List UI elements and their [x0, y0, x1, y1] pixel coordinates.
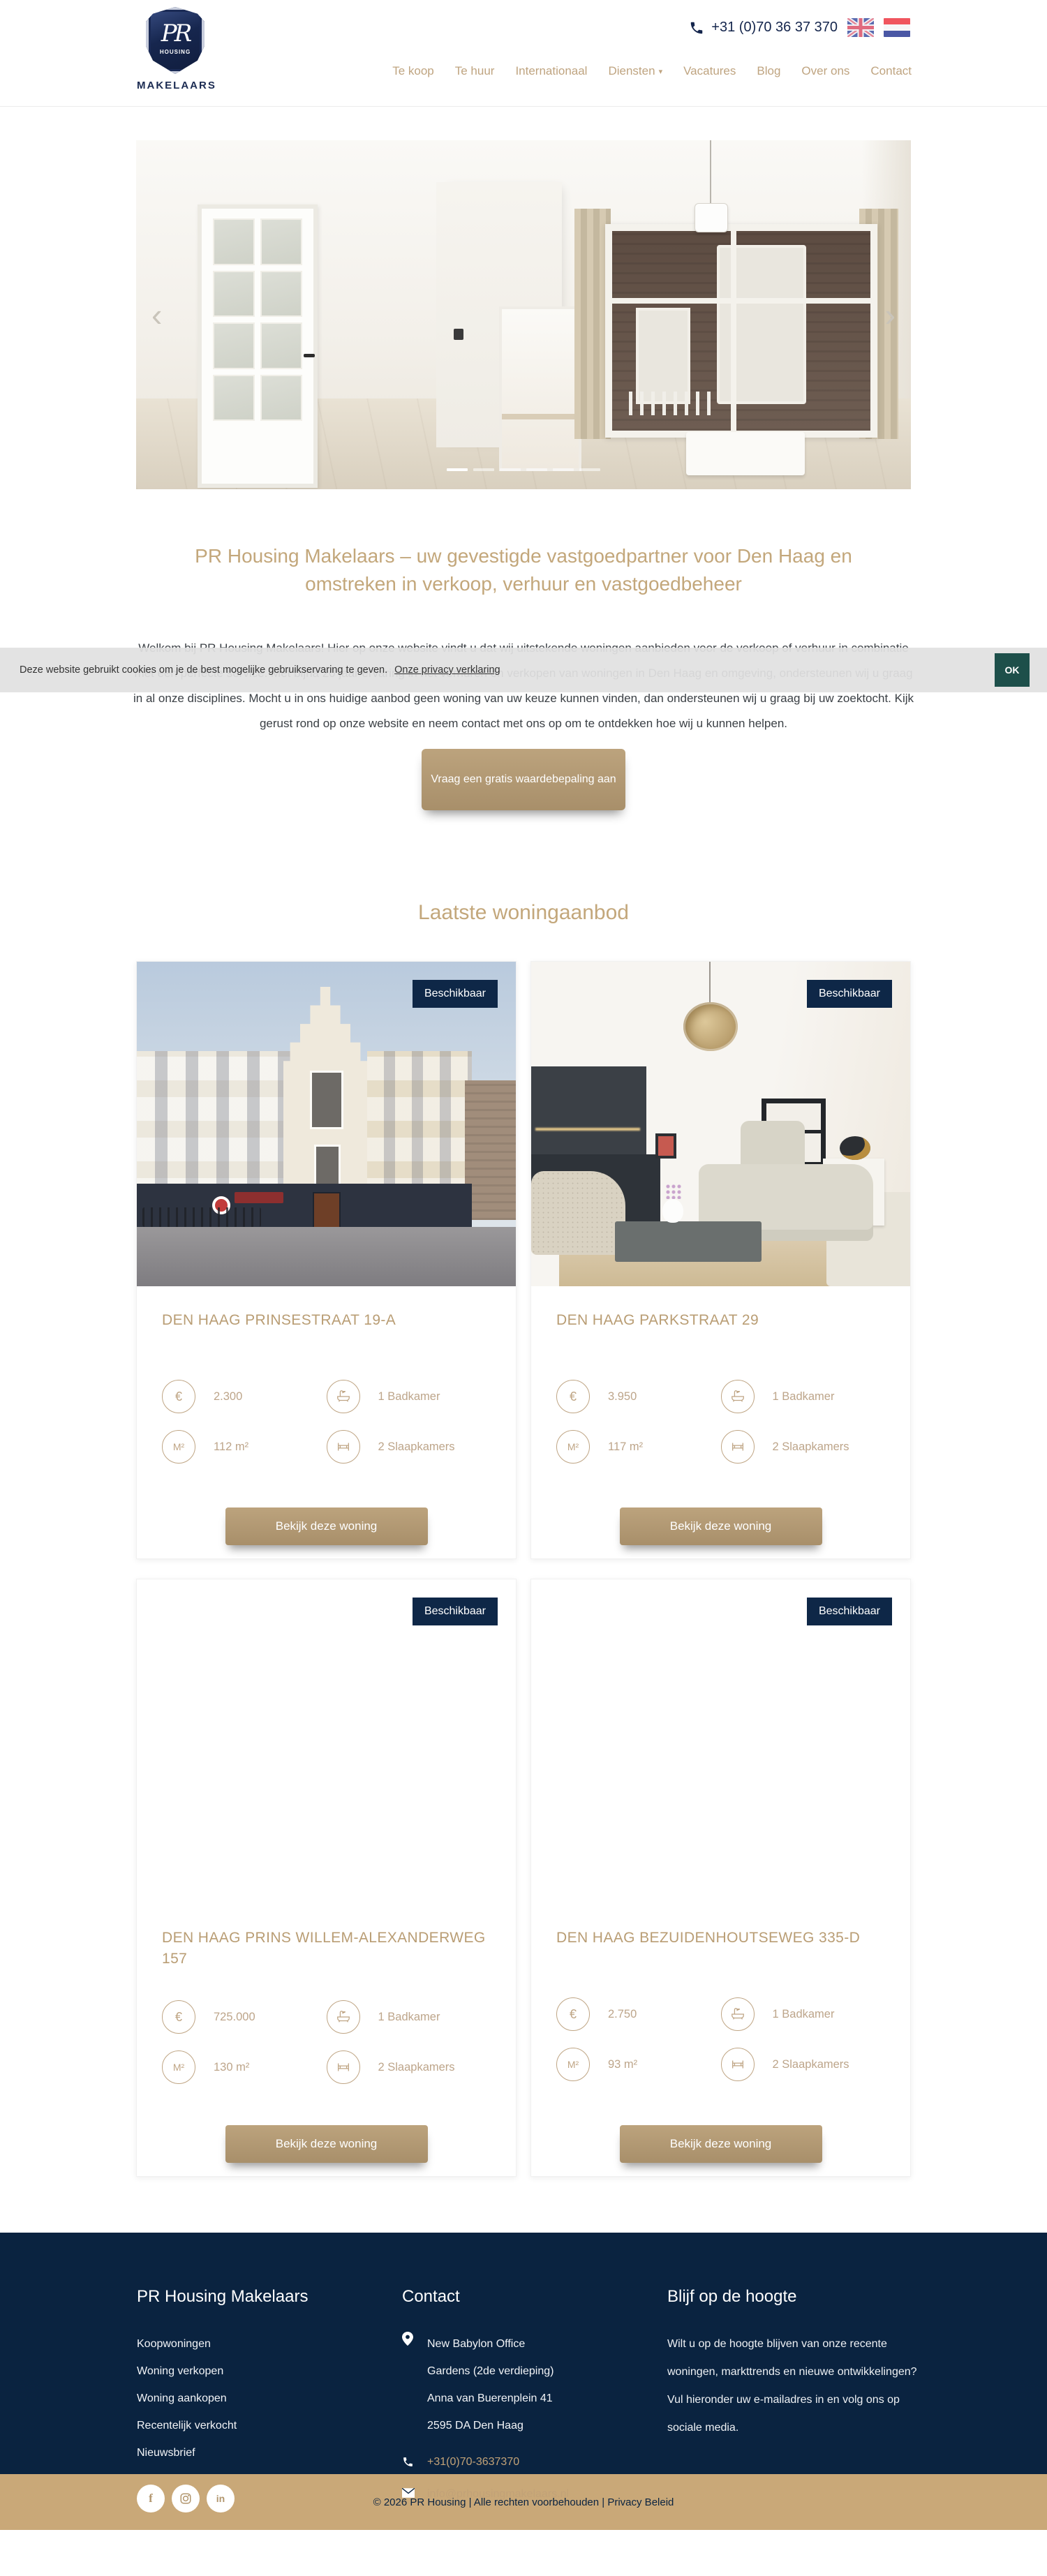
carousel-dash-4[interactable] — [526, 468, 547, 471]
hero-carousel: ‹ › — [136, 140, 911, 489]
feature-bathrooms: 1 Badkamer — [721, 1997, 886, 2031]
property-title: DEN HAAG PARKSTRAAT 29 — [556, 1310, 885, 1331]
cookie-message: Deze website gebruikt cookies om je de b… — [20, 664, 387, 676]
footer-email-link[interactable]: info@prhousingmakelaars.nl — [427, 2487, 569, 2502]
status-badge: Beschikbaar — [807, 1598, 892, 1625]
property-card-prinsestraat: Beschikbaar DEN HAAG PRINSESTRAAT 19-A €… — [136, 961, 517, 1559]
square-meters-icon: M² — [162, 1430, 195, 1464]
nav-vacatures[interactable]: Vacatures — [683, 64, 736, 78]
bathtub-icon — [721, 1997, 755, 2031]
footer-link-koopwoningen[interactable]: Koopwoningen — [137, 2330, 360, 2358]
property-photo: Beschikbaar — [137, 1579, 516, 1904]
euro-icon: € — [162, 1380, 195, 1413]
nav-blog[interactable]: Blog — [757, 64, 780, 78]
view-property-button[interactable]: Bekijk deze woning — [225, 1507, 428, 1545]
property-card-body: DEN HAAG BEZUIDENHOUTSEWEG 335-D € 2.750… — [531, 1928, 910, 2081]
cookie-ok-button[interactable]: OK — [995, 653, 1030, 687]
contact-address: New Babylon Office Gardens (2de verdiepi… — [427, 2330, 554, 2439]
euro-icon: € — [556, 1997, 590, 2031]
header-phone-link[interactable]: +31 (0)70 36 37 370 — [689, 20, 838, 36]
carousel-dash-1[interactable] — [447, 468, 468, 471]
intro-heading: PR Housing Makelaars – uw gevestigde vas… — [154, 542, 893, 598]
footer-newsletter-heading: Blijf op de hoogte — [667, 2287, 926, 2307]
listings-grid: Beschikbaar DEN HAAG PRINSESTRAAT 19-A €… — [136, 961, 911, 2177]
carousel-dash-2[interactable] — [473, 468, 494, 471]
footer-brand-heading: PR Housing Makelaars — [137, 2287, 360, 2307]
logo-shield-icon: PR HOUSING — [146, 7, 205, 74]
feature-price: € 3.950 — [556, 1380, 721, 1413]
property-features: € 2.750 1 Badkamer M² 93 m² — [556, 1997, 885, 2081]
property-card-parkstraat: Beschikbaar DEN HAAG PARKSTRAAT 29 € 3.9… — [530, 961, 911, 1559]
footer-link-nieuwsbrief[interactable]: Nieuwsbrief — [137, 2439, 360, 2466]
footer-phone-link[interactable]: +31(0)70-3637370 — [427, 2455, 519, 2471]
square-meters-icon: M² — [556, 1430, 590, 1464]
header-phone-number: +31 (0)70 36 37 370 — [711, 20, 838, 36]
carousel-dash-3[interactable] — [500, 468, 521, 471]
feature-bedrooms: 2 Slaapkamers — [721, 2048, 886, 2081]
header-top: +31 (0)70 36 37 370 — [689, 18, 910, 37]
flag-uk-icon[interactable] — [847, 18, 874, 37]
carousel-dash-6[interactable] — [579, 468, 600, 471]
carousel-next-arrow[interactable]: › — [885, 299, 896, 331]
contact-email-row: info@prhousingmakelaars.nl — [402, 2487, 632, 2502]
nav-contact[interactable]: Contact — [870, 64, 912, 78]
bathtub-icon — [721, 1380, 755, 1413]
carousel-prev-arrow[interactable]: ‹ — [151, 299, 162, 331]
feature-area: M² 117 m² — [556, 1430, 721, 1464]
phone-icon — [402, 2455, 415, 2471]
square-meters-icon: M² — [556, 2048, 590, 2081]
euro-icon: € — [556, 1380, 590, 1413]
page: PR HOUSING MAKELAARS +31 (0)70 36 37 370 — [0, 0, 1047, 2530]
footer-contact-heading: Contact — [402, 2287, 632, 2307]
site-header: PR HOUSING MAKELAARS +31 (0)70 36 37 370 — [0, 0, 1047, 107]
main-nav: Te koop Te huur Internationaal Diensten … — [392, 64, 912, 78]
nav-over-ons[interactable]: Over ons — [801, 64, 849, 78]
instagram-icon[interactable] — [172, 2485, 200, 2512]
feature-area: M² 130 m² — [162, 2050, 327, 2084]
footer-links: Koopwoningen Woning verkopen Woning aank… — [137, 2330, 360, 2466]
feature-bedrooms: 2 Slaapkamers — [721, 1430, 886, 1464]
feature-area: M² 93 m² — [556, 2048, 721, 2081]
property-title: DEN HAAG PRINS WILLEM-ALEXANDERWEG 157 — [162, 1928, 491, 1970]
status-badge: Beschikbaar — [807, 980, 892, 1008]
phone-icon — [689, 20, 704, 36]
status-badge: Beschikbaar — [413, 980, 498, 1008]
footer-newsletter-column: Blijf op de hoogte Wilt u op de hoogte b… — [667, 2287, 926, 2442]
footer-link-woning-verkopen[interactable]: Woning verkopen — [137, 2358, 360, 2385]
property-card-body: DEN HAAG PRINS WILLEM-ALEXANDERWEG 157 €… — [137, 1928, 516, 2084]
footer-link-woning-aankopen[interactable]: Woning aankopen — [137, 2385, 360, 2412]
logo[interactable]: PR HOUSING MAKELAARS — [137, 7, 214, 91]
property-features: € 3.950 1 Badkamer M² 117 m² — [556, 1380, 885, 1464]
nav-diensten[interactable]: Diensten ▾ — [608, 64, 662, 78]
property-card-willem-alexanderweg: Beschikbaar DEN HAAG PRINS WILLEM-ALEXAN… — [136, 1579, 517, 2177]
property-features: € 725.000 1 Badkamer M² 130 m² — [162, 2000, 491, 2084]
logo-makelaars-text: MAKELAARS — [137, 80, 214, 91]
listings-heading: Laatste woningaanbod — [0, 901, 1047, 925]
feature-bedrooms: 2 Slaapkamers — [327, 1430, 491, 1464]
feature-price: € 2.750 — [556, 1997, 721, 2031]
property-photo: Beschikbaar — [531, 962, 910, 1286]
footer-link-recentelijk-verkocht[interactable]: Recentelijk verkocht — [137, 2412, 360, 2439]
footer-contact-column: Contact New Babylon Office Gardens (2de … — [402, 2287, 632, 2517]
hero-slide-photo — [136, 140, 911, 489]
bed-icon — [327, 2050, 360, 2084]
site-footer: PR Housing Makelaars Koopwoningen Woning… — [0, 2233, 1047, 2474]
view-property-button[interactable]: Bekijk deze woning — [620, 1507, 822, 1545]
footer-brand-column: PR Housing Makelaars Koopwoningen Woning… — [137, 2287, 360, 2512]
logo-housing-text: HOUSING — [146, 49, 205, 55]
contact-address-row: New Babylon Office Gardens (2de verdiepi… — [402, 2330, 632, 2439]
feature-price: € 725.000 — [162, 2000, 327, 2034]
bathtub-icon — [327, 2000, 360, 2034]
carousel-dash-5[interactable] — [553, 468, 574, 471]
feature-bedrooms: 2 Slaapkamers — [327, 2050, 491, 2084]
view-property-button[interactable]: Bekijk deze woning — [225, 2125, 428, 2163]
property-card-bezuidenhoutseweg: Beschikbaar DEN HAAG BEZUIDENHOUTSEWEG 3… — [530, 1579, 911, 2177]
status-badge: Beschikbaar — [413, 1598, 498, 1625]
feature-bathrooms: 1 Badkamer — [721, 1380, 886, 1413]
nav-te-koop[interactable]: Te koop — [392, 64, 434, 78]
feature-area: M² 112 m² — [162, 1430, 327, 1464]
property-card-body: DEN HAAG PRINSESTRAAT 19-A € 2.300 1 Bad… — [137, 1310, 516, 1464]
property-title: DEN HAAG PRINSESTRAAT 19-A — [162, 1310, 491, 1331]
property-photo: Beschikbaar — [531, 1579, 910, 1904]
view-property-button[interactable]: Bekijk deze woning — [620, 2125, 822, 2163]
cookie-banner: Deze website gebruikt cookies om je de b… — [0, 648, 1047, 692]
bed-icon — [721, 2048, 755, 2081]
feature-bathrooms: 1 Badkamer — [327, 2000, 491, 2034]
property-features: € 2.300 1 Badkamer M² 112 m² — [162, 1380, 491, 1464]
property-card-body: DEN HAAG PARKSTRAAT 29 € 3.950 1 Badkame… — [531, 1310, 910, 1464]
bed-icon — [327, 1430, 360, 1464]
envelope-icon — [402, 2487, 415, 2502]
cookie-privacy-link[interactable]: Onze privacy verklaring — [394, 664, 500, 676]
property-photo: Beschikbaar — [137, 962, 516, 1286]
feature-bathrooms: 1 Badkamer — [327, 1380, 491, 1413]
footer-newsletter-text: Wilt u op de hoogte blijven van onze rec… — [667, 2330, 926, 2442]
bed-icon — [721, 1430, 755, 1464]
nav-internationaal[interactable]: Internationaal — [515, 64, 587, 78]
square-meters-icon: M² — [162, 2050, 195, 2084]
chevron-down-icon: ▾ — [659, 67, 663, 76]
euro-icon: € — [162, 2000, 195, 2034]
logo-monogram: PR — [146, 20, 205, 47]
property-title: DEN HAAG BEZUIDENHOUTSEWEG 335-D — [556, 1928, 885, 1949]
carousel-pagination — [447, 468, 600, 471]
flag-nl-icon[interactable] — [884, 18, 910, 37]
location-pin-icon — [402, 2330, 415, 2439]
facebook-icon[interactable]: f — [137, 2485, 165, 2512]
valuation-cta-button[interactable]: Vraag een gratis waardebepaling aan — [422, 749, 625, 810]
bathtub-icon — [327, 1380, 360, 1413]
contact-phone-row: +31(0)70-3637370 — [402, 2455, 632, 2471]
nav-te-huur[interactable]: Te huur — [455, 64, 495, 78]
footer-social: f in — [137, 2485, 360, 2512]
feature-price: € 2.300 — [162, 1380, 327, 1413]
linkedin-icon[interactable]: in — [207, 2485, 235, 2512]
